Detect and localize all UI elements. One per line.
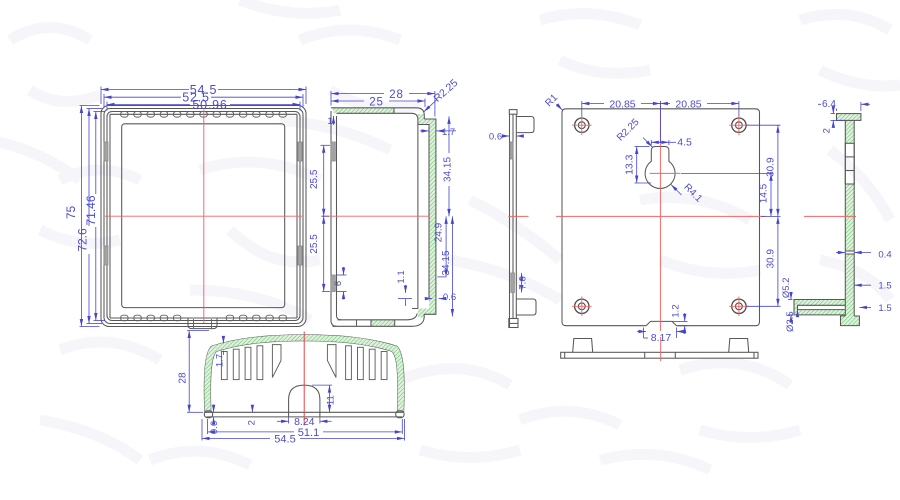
svg-text:34.15: 34.15 (441, 250, 452, 275)
svg-text:Ø5.2: Ø5.2 (781, 277, 792, 298)
svg-text:1.5: 1.5 (878, 281, 891, 292)
svg-text:R2.25: R2.25 (615, 117, 642, 144)
svg-text:0.6: 0.6 (443, 292, 456, 303)
svg-text:0.6: 0.6 (489, 132, 502, 143)
svg-text:R2.25: R2.25 (431, 77, 460, 105)
svg-text:14.5: 14.5 (758, 183, 769, 203)
svg-text:1.1: 1.1 (396, 270, 407, 283)
svg-text:1.5: 1.5 (878, 303, 891, 314)
svg-text:Ø2.5: Ø2.5 (785, 311, 796, 332)
svg-text:6.4: 6.4 (822, 99, 836, 110)
svg-text:7.6: 7.6 (518, 276, 529, 289)
svg-text:2: 2 (822, 128, 833, 133)
svg-text:13.3: 13.3 (623, 154, 635, 175)
svg-text:24.9: 24.9 (434, 222, 445, 242)
svg-text:75: 75 (64, 206, 78, 220)
svg-text:28: 28 (177, 372, 188, 384)
svg-text:25.5: 25.5 (309, 169, 320, 189)
svg-text:6: 6 (333, 281, 344, 286)
svg-text:72.6: 72.6 (76, 228, 90, 252)
svg-text:34.15: 34.15 (443, 157, 454, 182)
svg-text:1.2: 1.2 (671, 304, 682, 317)
svg-text:20.85: 20.85 (609, 98, 635, 110)
svg-text:R1: R1 (543, 92, 560, 109)
svg-text:28: 28 (389, 89, 403, 101)
svg-text:54.5: 54.5 (274, 434, 295, 446)
svg-text:0.4: 0.4 (878, 249, 891, 260)
svg-text:50.96: 50.96 (192, 98, 227, 112)
svg-text:51.1: 51.1 (298, 427, 319, 439)
svg-text:25: 25 (369, 96, 383, 108)
svg-text:30.9: 30.9 (766, 249, 777, 269)
svg-text:71.46: 71.46 (84, 195, 98, 225)
svg-text:2: 2 (247, 420, 258, 425)
svg-text:4.5: 4.5 (677, 136, 692, 148)
svg-text:1.7: 1.7 (215, 354, 226, 367)
svg-text:25.5: 25.5 (309, 234, 320, 254)
svg-text:11: 11 (326, 395, 337, 405)
svg-text:1: 1 (327, 116, 332, 127)
svg-text:20.85: 20.85 (675, 98, 701, 110)
